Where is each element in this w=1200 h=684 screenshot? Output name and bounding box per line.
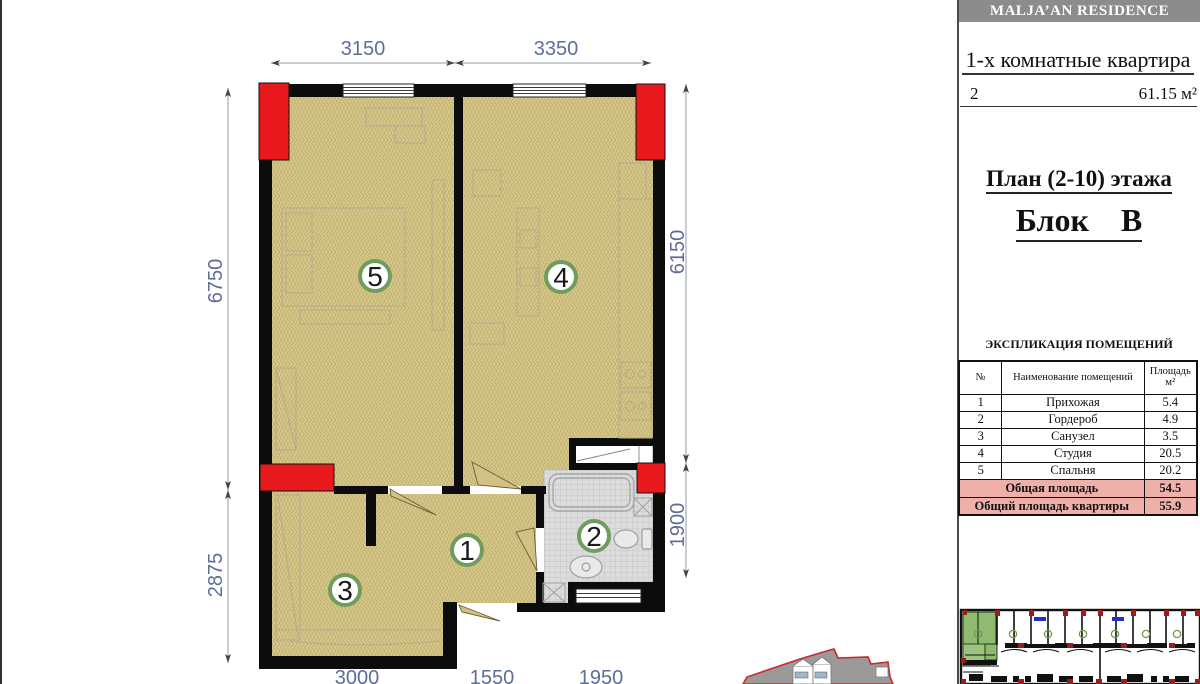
svg-text:3: 3 bbox=[337, 575, 353, 606]
svg-text:3350: 3350 bbox=[534, 38, 579, 60]
svg-text:6750: 6750 bbox=[205, 259, 227, 304]
svg-text:1550: 1550 bbox=[470, 667, 515, 684]
svg-text:3150: 3150 bbox=[341, 38, 386, 60]
svg-text:4: 4 bbox=[553, 262, 569, 293]
svg-text:2: 2 bbox=[586, 521, 602, 552]
svg-text:1950: 1950 bbox=[579, 667, 624, 684]
svg-text:3000: 3000 bbox=[335, 667, 380, 684]
svg-text:2875: 2875 bbox=[205, 553, 227, 598]
svg-text:1: 1 bbox=[459, 535, 475, 566]
svg-text:5: 5 bbox=[367, 261, 383, 292]
svg-text:1900: 1900 bbox=[667, 503, 689, 548]
svg-text:6150: 6150 bbox=[667, 230, 689, 275]
